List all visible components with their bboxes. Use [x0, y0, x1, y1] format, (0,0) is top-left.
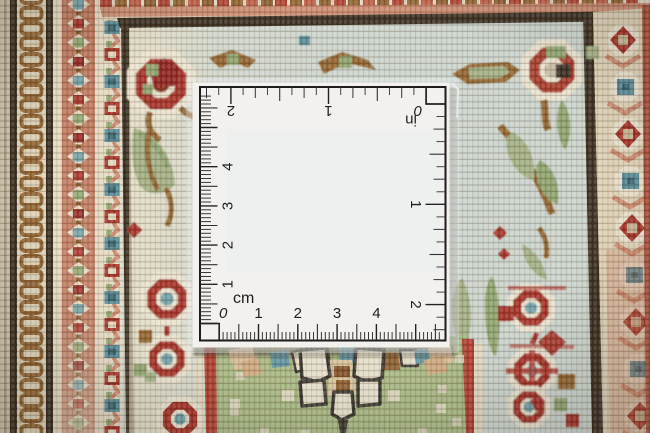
svg-text:2: 2: [220, 241, 237, 249]
svg-text:cm: cm: [233, 290, 254, 307]
svg-text:in: in: [405, 112, 417, 129]
svg-text:3: 3: [333, 305, 341, 322]
svg-text:1: 1: [254, 305, 262, 322]
svg-text:1: 1: [220, 280, 237, 288]
svg-text:4: 4: [220, 163, 237, 171]
svg-text:1: 1: [407, 200, 424, 208]
svg-text:2: 2: [407, 300, 424, 308]
svg-text:2: 2: [227, 102, 235, 119]
svg-text:0: 0: [219, 305, 228, 322]
svg-text:2: 2: [294, 305, 302, 322]
svg-text:3: 3: [220, 202, 237, 210]
svg-text:1: 1: [324, 102, 332, 119]
svg-text:4: 4: [372, 305, 380, 322]
